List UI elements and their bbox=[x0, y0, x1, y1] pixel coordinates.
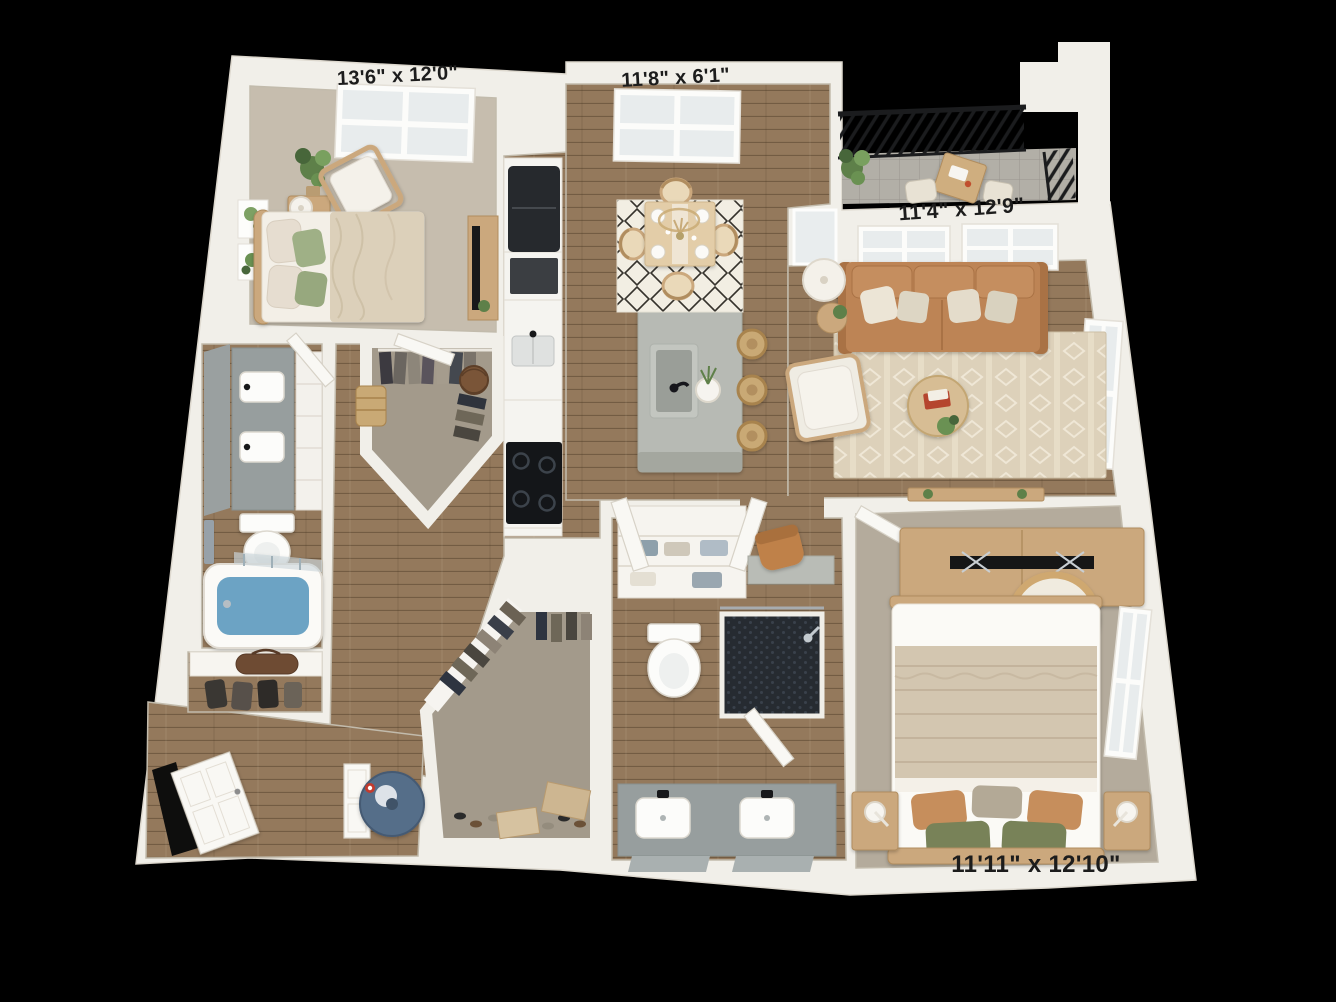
place-setting bbox=[651, 245, 665, 259]
throw-pillow bbox=[859, 285, 899, 325]
living-rug bbox=[834, 332, 1106, 478]
desk-plant bbox=[478, 300, 490, 312]
bed-2 bbox=[888, 596, 1104, 864]
linen-closet bbox=[611, 498, 767, 598]
tv-screen bbox=[472, 226, 480, 310]
coffee-table bbox=[908, 376, 968, 436]
pillow-green-pattern bbox=[291, 228, 327, 269]
towel-stack bbox=[630, 572, 656, 586]
floor-plan-canvas: 13'6" x 12'0" 11'8" x 6'1" 11'4" x 12'9"… bbox=[0, 0, 1336, 1002]
nightstand-right bbox=[1104, 792, 1150, 850]
tv-desk bbox=[468, 216, 498, 320]
kitchen-faucet bbox=[530, 331, 537, 338]
dining-area bbox=[613, 89, 743, 312]
towel-stack bbox=[692, 572, 722, 588]
vanity-mirror-leaning bbox=[628, 856, 710, 872]
bedroom1-window bbox=[335, 84, 475, 163]
place-setting bbox=[695, 245, 709, 259]
vanity-mirror bbox=[204, 344, 230, 516]
faucet bbox=[657, 790, 669, 798]
throw-pillow bbox=[946, 288, 982, 324]
pillow-sage bbox=[294, 270, 328, 308]
kitchen-sink bbox=[512, 331, 554, 367]
balcony-glass-door bbox=[794, 210, 836, 264]
dining-window bbox=[613, 89, 740, 163]
duvet bbox=[330, 212, 424, 322]
tub-faucet bbox=[223, 600, 231, 608]
side-table-plant bbox=[833, 305, 847, 319]
pillow-gray bbox=[971, 785, 1022, 819]
faucet bbox=[244, 384, 250, 390]
faucet bbox=[761, 790, 773, 798]
wall-oven bbox=[510, 258, 558, 294]
balcony-column-leg bbox=[1078, 108, 1110, 204]
console-table bbox=[908, 488, 1044, 501]
faucet bbox=[244, 444, 250, 450]
shower bbox=[720, 608, 824, 716]
storage-basket bbox=[356, 386, 386, 426]
toilet-2 bbox=[648, 624, 700, 697]
lounge-armchair bbox=[786, 354, 870, 441]
duffel-bag bbox=[236, 654, 298, 674]
storage-box bbox=[496, 807, 539, 838]
floor-lamp-finial bbox=[820, 276, 828, 284]
vanity-mirror-leaning bbox=[732, 856, 814, 872]
sofa bbox=[838, 262, 1048, 354]
balcony-column-cap bbox=[1058, 42, 1110, 66]
bedroom2-dimensions: 11'11" x 12'10" bbox=[951, 851, 1121, 878]
floor-plan-svg: 13'6" x 12'0" 11'8" x 6'1" 11'4" x 12'9"… bbox=[0, 0, 1336, 1002]
tub-water bbox=[217, 577, 309, 635]
bar-stools bbox=[738, 330, 766, 450]
balcony-column bbox=[1020, 62, 1110, 112]
hanging-coat bbox=[231, 681, 253, 711]
towel-stack bbox=[700, 540, 728, 556]
throw-pillow bbox=[896, 290, 930, 324]
island-base bbox=[638, 452, 742, 472]
cooktop bbox=[506, 442, 562, 524]
hanging-coat bbox=[257, 679, 279, 708]
bathtub bbox=[204, 552, 322, 648]
towel-stack bbox=[664, 542, 690, 556]
kitchen bbox=[504, 158, 562, 536]
dining-table bbox=[645, 202, 715, 266]
bed-1 bbox=[254, 210, 424, 324]
throw-pillow bbox=[984, 290, 1019, 325]
hanging-coat bbox=[204, 679, 228, 710]
nightstand-left bbox=[852, 792, 898, 850]
kitchen-island bbox=[638, 306, 766, 472]
hanging-coat bbox=[284, 682, 302, 708]
water-heater bbox=[360, 772, 424, 836]
towel-bar bbox=[204, 520, 214, 564]
